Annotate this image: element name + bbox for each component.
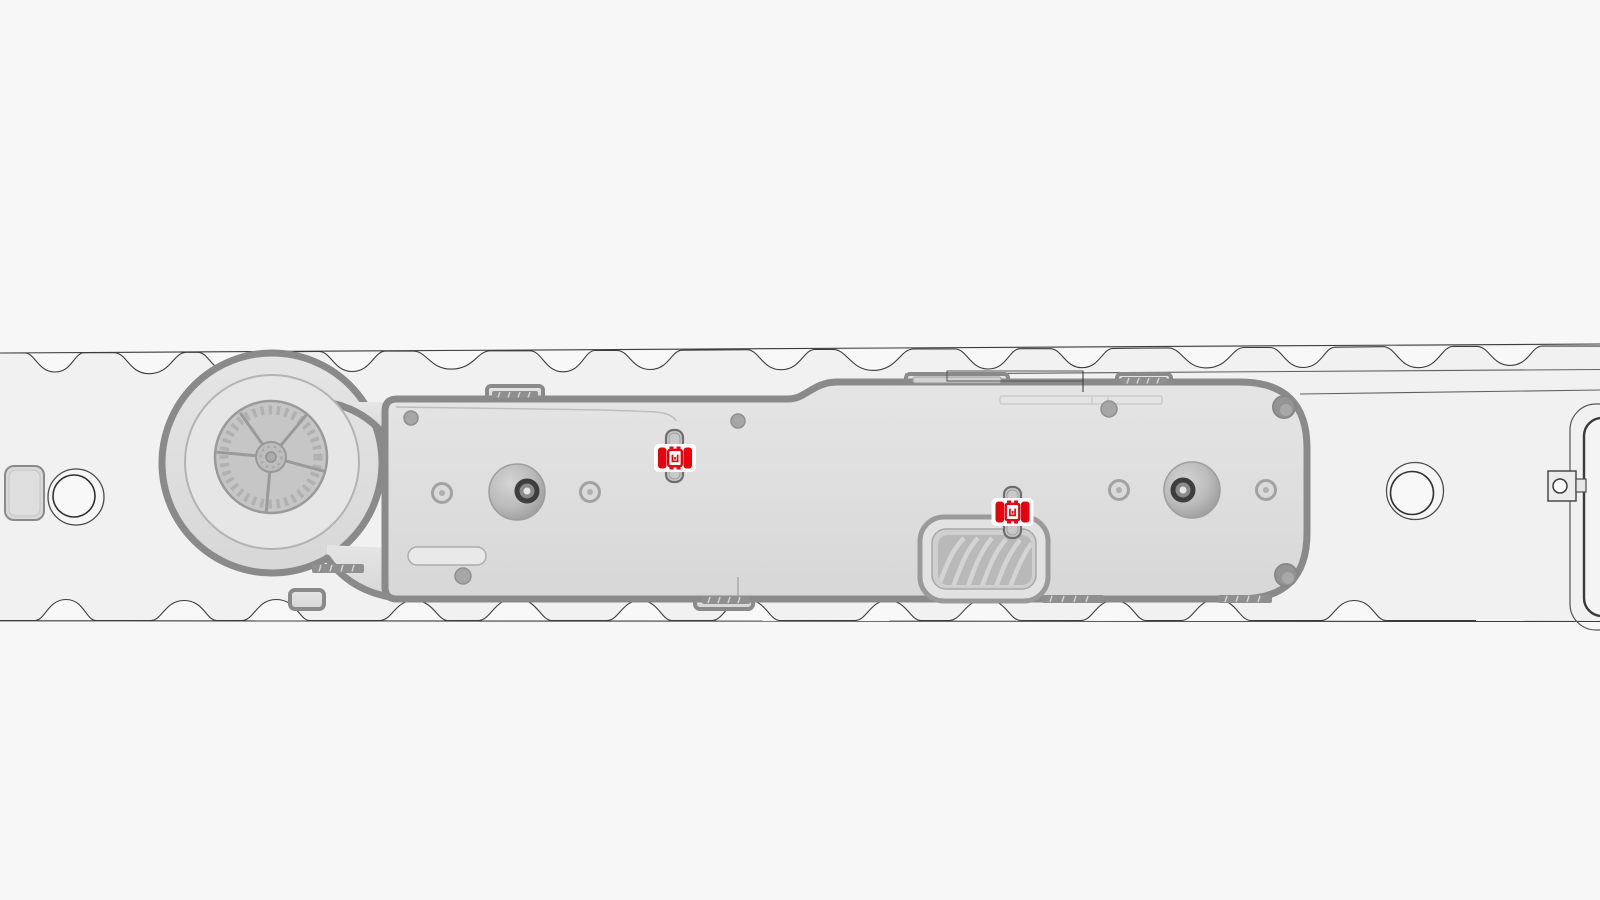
panel-hole-inner [1391, 472, 1434, 515]
bottom-tab-housing [290, 590, 324, 609]
pivot-ring-center [1263, 487, 1269, 493]
rivet [455, 568, 471, 584]
clip-marker-1 [654, 444, 696, 472]
connector-rib-housing [312, 564, 364, 573]
screw [1101, 401, 1117, 417]
actuator-shaft-tip [524, 488, 531, 495]
beam-bottom-line [0, 621, 1600, 622]
technical-illustration [0, 0, 1600, 900]
drain-vent-grille [920, 517, 1048, 601]
corner-hole-inner [1280, 404, 1292, 416]
screw [731, 414, 745, 428]
connector-rib-top-left [492, 391, 538, 398]
blower-wheel [185, 375, 359, 549]
corner-hole-inner [1282, 572, 1294, 584]
blower-hub-center [266, 452, 276, 462]
actuator-shaft-right [1164, 462, 1220, 518]
latch-nub [1576, 479, 1586, 492]
mount-pad-face [9, 470, 40, 516]
guide-slot [408, 547, 486, 565]
pivot-ring-center [587, 489, 593, 495]
clip-marker-2 [992, 498, 1034, 526]
illustration-stage [0, 0, 1600, 900]
pivot-ring-center [1116, 487, 1122, 493]
mount-hole-inner [53, 475, 95, 517]
actuator-shaft-left [489, 464, 545, 520]
screw [404, 411, 418, 425]
plateau-slot [913, 377, 1001, 383]
actuator-shaft-tip [1180, 487, 1187, 494]
connector-rib-bottom-right-a [1042, 595, 1104, 603]
connector-rib-bottom-right-b [1218, 595, 1272, 603]
pivot-ring-center [439, 490, 445, 496]
end-cutout [1584, 418, 1600, 616]
connector-rib-top-right [1121, 377, 1167, 384]
latch-bracket-hole [1553, 479, 1567, 493]
connector-rib-bottom-center [702, 596, 750, 604]
